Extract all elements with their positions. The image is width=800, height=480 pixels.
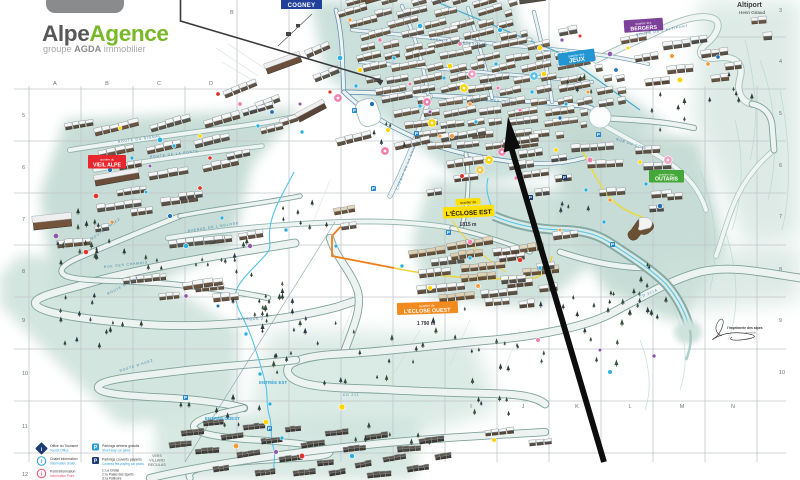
svg-text:quartier du: quartier du	[100, 158, 115, 162]
svg-text:P: P	[563, 175, 566, 180]
svg-text:7: 7	[22, 217, 25, 223]
svg-text:groupe AGDA immobilier: groupe AGDA immobilier	[43, 44, 146, 54]
svg-text:Tourist Office: Tourist Office	[50, 449, 69, 453]
svg-text:l'imprimerie des alpes: l'imprimerie des alpes	[727, 326, 763, 330]
svg-text:P: P	[268, 426, 271, 431]
svg-text:N: N	[731, 404, 735, 410]
svg-text:4: 4	[779, 59, 782, 65]
svg-text:Information Point: Information Point	[50, 474, 74, 478]
svg-text:A: A	[53, 81, 57, 87]
svg-text:11: 11	[22, 424, 28, 430]
svg-text:L: L	[628, 404, 631, 410]
svg-text:3: 3	[779, 8, 782, 14]
svg-text:ENTRÉE EST: ENTRÉE EST	[259, 380, 288, 385]
svg-text:Chalet information: Chalet information	[50, 457, 78, 461]
svg-text:Information chalet: Information chalet	[50, 462, 75, 466]
svg-text:VILLARD: VILLARD	[149, 459, 165, 463]
svg-text:P: P	[611, 242, 614, 247]
svg-text:VIEIL ALPE: VIEIL ALPE	[93, 163, 122, 169]
svg-text:VERS: VERS	[152, 454, 162, 458]
svg-text:12: 12	[22, 472, 28, 478]
svg-text:P: P	[372, 186, 375, 191]
svg-text:Office du Tourisme: Office du Tourisme	[50, 444, 78, 448]
svg-text:5: 5	[779, 111, 782, 117]
svg-text:grenoble: grenoble	[745, 331, 756, 335]
svg-text:P: P	[597, 132, 600, 137]
svg-text:ENTRÉE OUEST: ENTRÉE OUEST	[205, 416, 240, 421]
svg-text:M: M	[680, 404, 685, 410]
svg-text:6: 6	[779, 163, 782, 169]
svg-text:K: K	[575, 404, 579, 410]
svg-text:AlpeAgence: AlpeAgence	[42, 21, 169, 46]
svg-text:B: B	[230, 10, 234, 16]
svg-text:Covered fee-paying car parks: Covered fee-paying car parks	[102, 462, 144, 466]
svg-text:Altiport: Altiport	[737, 2, 763, 9]
svg-text:J: J	[522, 404, 525, 410]
svg-text:7: 7	[779, 214, 782, 220]
svg-text:9: 9	[779, 318, 782, 324]
svg-text:1815 m: 1815 m	[460, 222, 478, 228]
svg-text:D: D	[209, 81, 213, 87]
svg-text:P: P	[184, 395, 187, 400]
svg-text:B: B	[105, 81, 109, 87]
svg-text:8: 8	[22, 269, 25, 275]
svg-text:Henri Giraud: Henri Giraud	[739, 10, 765, 15]
svg-text:3: la Patinoire: 3: la Patinoire	[102, 477, 122, 480]
svg-text:5: 5	[22, 113, 25, 119]
svg-text:quartier de: quartier de	[460, 200, 477, 205]
svg-text:COGNEY: COGNEY	[288, 3, 316, 9]
svg-text:1 790 m: 1 790 m	[417, 321, 436, 327]
svg-text:10: 10	[779, 370, 785, 376]
svg-text:P: P	[353, 108, 356, 113]
svg-text:10: 10	[22, 371, 28, 377]
svg-text:9: 9	[22, 318, 25, 324]
svg-text:quartier des: quartier des	[659, 172, 675, 176]
svg-text:Short-stay car parks: Short-stay car parks	[102, 449, 131, 453]
svg-text:6: 6	[22, 165, 25, 171]
svg-text:Parkings couverts payants: Parkings couverts payants	[102, 458, 142, 462]
svg-text:KIOSQUE 2: KIOSQUE 2	[238, 317, 264, 321]
svg-text:P: P	[447, 230, 450, 235]
svg-text:OUTARIS: OUTARIS	[655, 177, 678, 183]
svg-text:C: C	[157, 81, 161, 87]
svg-text:RECULAS: RECULAS	[148, 463, 166, 467]
svg-text:Point information: Point information	[50, 470, 76, 474]
svg-text:Parkings aériens gratuits: Parkings aériens gratuits	[102, 444, 140, 448]
svg-text:CD 211: CD 211	[343, 392, 359, 397]
